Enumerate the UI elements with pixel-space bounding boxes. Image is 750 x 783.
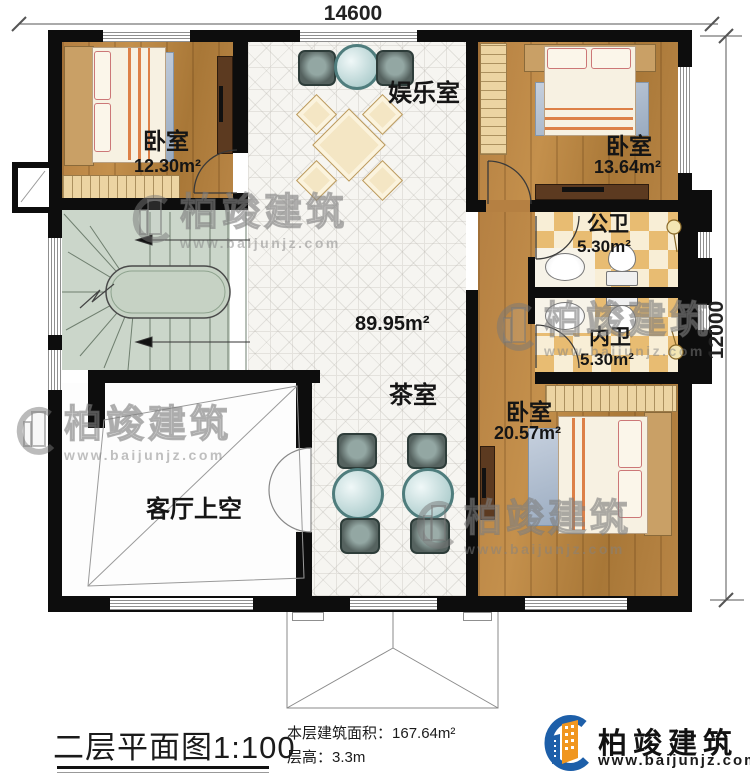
bay-window-glass: [18, 168, 49, 207]
window-top-entertainment: [300, 30, 417, 42]
public-bath-toilet-tank: [606, 271, 638, 286]
wall-stair-left-stub: [88, 383, 105, 428]
porch-roof: [287, 612, 498, 708]
window-bottom-tea: [350, 598, 437, 610]
company-logo: [538, 714, 594, 774]
ensuite-bath-sink: [545, 302, 585, 330]
bedroom1-headboard: [64, 46, 94, 166]
label-public-bath-name: 公卫: [587, 214, 629, 236]
tea-chair-3: [407, 433, 447, 469]
wall-bedroom1-bottom: [48, 198, 248, 210]
bedroom1-wardrobe: [62, 175, 180, 199]
bedroom2-pillow-1: [547, 48, 587, 69]
label-bedroom3-area: 20.57m²: [494, 424, 561, 443]
bedroom2-door-opening: [486, 200, 530, 212]
floor-area-label: 本层建筑面积：: [287, 725, 392, 742]
bedroom3-headboard: [644, 412, 672, 536]
label-ensuite-bath-name: 内卫: [589, 327, 631, 349]
entertainment-chair-left: [298, 50, 336, 86]
bedroom3-pillow-1: [618, 420, 642, 468]
label-bedroom1-name: 卧室: [143, 129, 189, 153]
label-bedroom2-area: 13.64m²: [594, 158, 661, 177]
label-entertainment: 娱乐室: [388, 81, 460, 106]
floor-area-line: 本层建筑面积：167.64m²: [287, 722, 455, 743]
label-bedroom3-name: 卧室: [506, 400, 552, 424]
window-top-bedroom1: [103, 30, 190, 42]
tea-chair-4: [410, 518, 450, 554]
title-underline-thin: [57, 772, 269, 773]
label-ensuite-bath-area: 5.30m²: [580, 351, 634, 369]
floor-height-value: 3.3m: [332, 749, 365, 766]
tea-chair-1: [337, 433, 377, 469]
label-bedroom1-area: 12.30m²: [134, 157, 201, 176]
wall-bath-divider: [535, 287, 692, 298]
porch-sill-right: [463, 612, 492, 621]
floor-height-label: 层高：: [287, 749, 332, 766]
wall-void-right-upper: [296, 383, 312, 448]
tea-table-2: [402, 468, 454, 520]
public-bath-sink: [545, 253, 585, 281]
staircase-floor: [62, 205, 230, 370]
tea-chair-2: [340, 518, 380, 554]
tea-table-1: [332, 468, 384, 520]
bedroom2-wardrobe: [480, 43, 507, 155]
wall-bath-left-stub-1: [528, 257, 535, 298]
window-left-void: [46, 350, 62, 390]
entertainment-round-table: [334, 44, 380, 90]
dimension-top-label: 14600: [313, 2, 393, 26]
wall-bedroom3-left: [466, 290, 478, 596]
window-left-staircase: [46, 238, 62, 335]
window-right-public-bath: [698, 232, 712, 258]
wall-bedroom1-right-upper: [233, 30, 248, 153]
floor-plan-page: 14600 12000 娱乐室 卧室 12.30m² 卧室 13.64m² 公卫…: [0, 0, 750, 783]
bedroom2-monitor: [562, 187, 604, 192]
window-bottom-bedroom3: [525, 598, 627, 610]
bedroom2-blanket: [545, 108, 633, 130]
porch-sill-left: [292, 612, 324, 621]
bedroom3-tv: [482, 468, 486, 498]
bedroom2-pillow-2: [591, 48, 631, 69]
title-underline-thick: [57, 766, 269, 769]
bedroom3-blanket: [572, 418, 592, 530]
dimension-right-label: 12000: [705, 290, 729, 370]
wall-bedroom2-left: [466, 30, 478, 212]
bedroom3-pillow-2: [618, 470, 642, 518]
company-brand-url: www.baijunjz.com: [598, 752, 750, 769]
window-bottom-void: [110, 598, 253, 610]
floor-area-value: 167.64m²: [392, 725, 455, 742]
label-public-bath-area: 5.30m²: [577, 238, 631, 256]
plan-title: 二层平面图1:100: [53, 722, 296, 767]
wall-stair-bottom: [88, 370, 320, 383]
window-right-bedroom2: [678, 67, 692, 173]
floor-height-line: 层高：3.3m: [287, 746, 365, 767]
wall-bedroom3-top: [535, 372, 692, 384]
wall-bath-left-stub-2: [528, 298, 535, 324]
bedroom1-pillow-1: [94, 51, 111, 100]
bedroom3-wardrobe: [545, 385, 677, 412]
bedroom1-pillow-2: [94, 103, 111, 152]
label-bedroom2-name: 卧室: [606, 134, 652, 158]
company-logo-icon: [538, 714, 594, 774]
wall-void-right-lower: [296, 532, 312, 596]
label-living-void: 客厅上空: [146, 497, 242, 522]
label-tea-room: 茶室: [389, 383, 437, 408]
bedroom1-tv: [219, 86, 223, 122]
label-open-area: 89.95m²: [355, 314, 430, 335]
